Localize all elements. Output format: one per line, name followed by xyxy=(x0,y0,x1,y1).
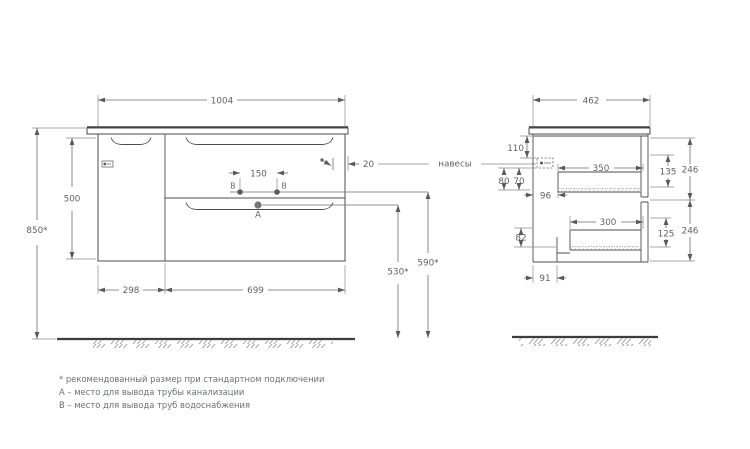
dim-label-350: 350 xyxy=(593,164,610,174)
dim-label-590: 590* xyxy=(417,259,439,269)
side-view: 462 110 80 70 xyxy=(498,95,699,346)
door-handle-groove xyxy=(111,138,151,145)
dim-label-135: 135 xyxy=(660,168,677,178)
dim-hanger-top: 110 xyxy=(507,136,536,158)
note-point-a: А – место для вывода трубы канализации xyxy=(59,387,244,397)
dim-hanger-heights: 80 70 xyxy=(498,168,536,190)
point-a-dot xyxy=(254,201,261,208)
dim-label-96: 96 xyxy=(540,192,552,202)
vanity-drawing-svg: 1004 500 850* 150 B B xyxy=(0,0,750,449)
note-point-b: В – место для вывода труб водоснабжения xyxy=(59,400,250,410)
top-drawer-handle-groove xyxy=(186,138,333,145)
dim-front-height: 500 xyxy=(64,138,96,259)
dim-drain-height: 530* xyxy=(387,205,409,338)
side-bottom-drawer-front xyxy=(641,202,648,262)
dim-label-530: 530* xyxy=(387,268,409,278)
point-b-right-label: B xyxy=(282,182,287,191)
dim-depth: 462 xyxy=(533,95,650,126)
siphon-recess xyxy=(557,237,570,262)
front-cabinet-outline xyxy=(87,127,348,261)
front-view: 1004 500 850* 150 B B xyxy=(26,95,536,348)
side-bottom-drawer-box: 300 xyxy=(557,216,643,262)
dim-label-246-bottom: 246 xyxy=(682,227,699,237)
side-floor xyxy=(512,337,658,346)
dim-bottom-height: 82 xyxy=(514,228,556,247)
side-top-drawer-box: 350 xyxy=(558,164,643,192)
note-recommended-size: * рекомендованный размер при стандартном… xyxy=(59,374,324,384)
front-floor-hatch xyxy=(93,341,333,349)
dim-label-246-top: 246 xyxy=(682,166,699,176)
dim-label-91: 91 xyxy=(539,274,550,284)
dim-bottom-drawer-heights: 125 246 xyxy=(650,200,699,261)
dim-front-width: 1004 xyxy=(98,95,345,126)
dim-label-699: 699 xyxy=(247,286,264,296)
dim-top-drawer-heights: 135 246 xyxy=(650,138,699,200)
dim-label-125: 125 xyxy=(658,230,675,240)
left-hanger-icon xyxy=(102,161,113,167)
footnotes: * рекомендованный размер при стандартном… xyxy=(59,374,324,410)
hangers-label: навесы xyxy=(438,160,472,170)
technical-drawing-page: 1004 500 850* 150 B B xyxy=(0,0,750,449)
dim-label-70: 70 xyxy=(513,177,525,187)
side-countertop xyxy=(529,128,650,134)
dim-label-150: 150 xyxy=(250,170,267,180)
dim-door-width: 298 699 xyxy=(98,263,345,296)
point-b-right-dot xyxy=(274,189,280,195)
dim-label-1004: 1004 xyxy=(211,97,234,107)
side-top-drawer-front xyxy=(641,134,648,197)
dim-hanger-depth: 96 xyxy=(524,192,567,202)
side-hanger-bracket xyxy=(537,158,553,168)
dim-label-20: 20 xyxy=(363,160,375,170)
front-floor xyxy=(57,339,355,348)
point-b-left-dot xyxy=(237,189,243,195)
hangers-line: 20 навесы xyxy=(348,156,536,171)
dim-label-462: 462 xyxy=(583,97,600,107)
dim-label-298: 298 xyxy=(123,286,140,296)
dim-label-80: 80 xyxy=(498,177,510,187)
dim-label-300: 300 xyxy=(600,218,617,228)
side-floor-hatch xyxy=(519,339,651,347)
dim-label-500: 500 xyxy=(64,195,81,205)
point-a-label: A xyxy=(255,211,261,221)
dim-label-82: 82 xyxy=(515,234,526,244)
dim-back-gap: 91 xyxy=(524,265,566,284)
drain-point: A xyxy=(254,201,398,220)
dim-supply-height: 590* xyxy=(417,192,439,338)
front-countertop xyxy=(87,128,348,134)
point-b-left-label: B xyxy=(230,182,235,191)
water-supply-points: 150 B B xyxy=(229,170,428,195)
dim-total-height: 850* xyxy=(26,128,86,339)
dim-label-850: 850* xyxy=(26,226,48,236)
dim-label-110: 110 xyxy=(507,144,524,154)
right-hanger-icon xyxy=(320,158,333,170)
